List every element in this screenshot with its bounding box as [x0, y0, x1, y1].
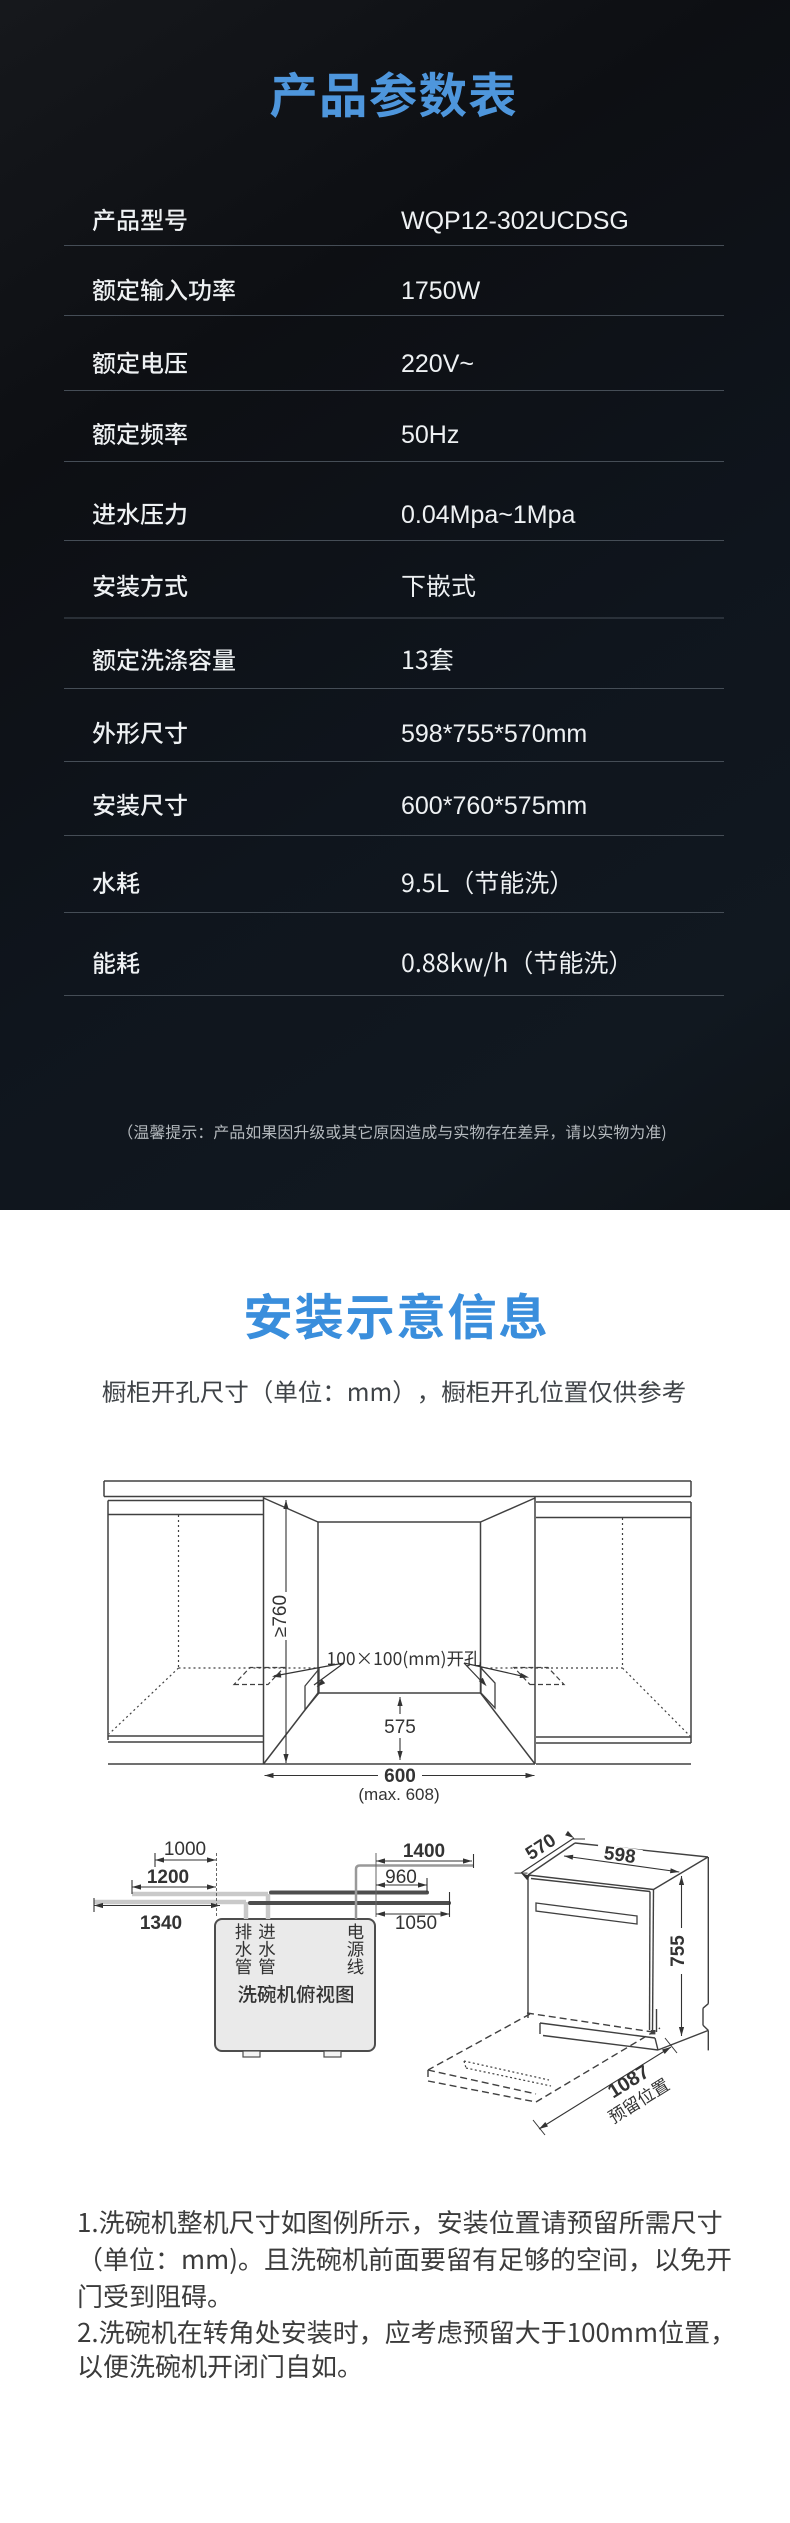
svg-text:755: 755	[668, 1935, 689, 1967]
svg-text:598*755*570mm: 598*755*570mm	[401, 720, 587, 748]
svg-text:598: 598	[603, 1843, 637, 1868]
svg-text:WQP12-302UCDSG: WQP12-302UCDSG	[401, 207, 629, 235]
svg-text:1000: 1000	[164, 1839, 206, 1860]
svg-text:50Hz: 50Hz	[401, 421, 459, 449]
svg-text:1050: 1050	[395, 1913, 437, 1934]
svg-text:600*760*575mm: 600*760*575mm	[401, 792, 587, 820]
svg-text:1200: 1200	[147, 1867, 189, 1888]
svg-text:≥760: ≥760	[270, 1595, 291, 1637]
svg-text:960: 960	[385, 1867, 417, 1888]
svg-text:1340: 1340	[140, 1913, 182, 1934]
svg-text:220V~: 220V~	[401, 350, 474, 378]
svg-text:1750W: 1750W	[401, 277, 481, 305]
svg-text:575: 575	[384, 1717, 416, 1738]
svg-text:(max. 608): (max. 608)	[358, 1785, 439, 1804]
svg-text:1400: 1400	[403, 1841, 445, 1862]
svg-text:0.04Mpa~1Mpa: 0.04Mpa~1Mpa	[401, 501, 576, 529]
svg-text:600: 600	[384, 1766, 416, 1787]
